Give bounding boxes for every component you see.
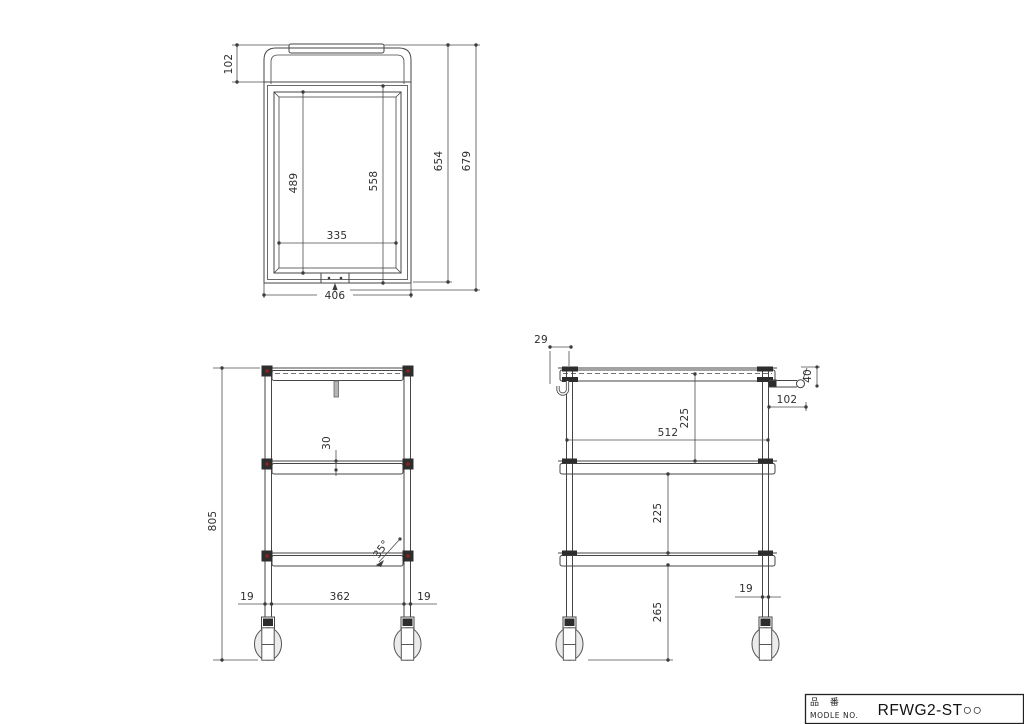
dim-handle-length: 102 bbox=[777, 394, 798, 406]
front-view: 805 30 35° 19 362 19 bbox=[207, 366, 437, 662]
dim-left-offset: 19 bbox=[240, 591, 254, 603]
dim-handle-depth: 102 bbox=[223, 54, 235, 75]
dim-outer-width: 406 bbox=[325, 290, 346, 302]
side-hook bbox=[558, 381, 568, 394]
front-casters bbox=[255, 617, 422, 660]
model-number: RFWG2-ST○○ bbox=[878, 702, 983, 719]
clamp-dot bbox=[406, 554, 410, 558]
dim-shelf-gap-top: 225 bbox=[679, 408, 691, 429]
side-posts bbox=[567, 368, 769, 617]
clamp-dot bbox=[265, 554, 269, 558]
dim-shelf-gap-bottom: 225 bbox=[652, 503, 664, 524]
dim-right-offset: 19 bbox=[417, 591, 431, 603]
side-view-dimensions: 29 40 102 225 512 225 265 19 bbox=[534, 334, 820, 662]
dim-total-length: 679 bbox=[461, 151, 473, 172]
handle bbox=[264, 44, 411, 84]
dim-total-height: 805 bbox=[207, 511, 219, 532]
name-plate bbox=[321, 273, 349, 283]
dim-hook-offset: 29 bbox=[534, 334, 548, 346]
hook-pin bbox=[334, 381, 339, 397]
dim-leg-span: 362 bbox=[330, 591, 351, 603]
front-shelf-bottom bbox=[262, 551, 414, 567]
dim-inner-width: 335 bbox=[327, 230, 348, 242]
clamp-dot bbox=[406, 369, 410, 373]
title-block: 品 番 MODLE NO. RFWG2-ST○○ bbox=[806, 695, 1024, 724]
clamp-dot bbox=[265, 462, 269, 466]
dim-post-dia: 19 bbox=[739, 583, 753, 595]
front-shelf-top bbox=[262, 366, 414, 398]
front-posts bbox=[265, 368, 411, 617]
caster-wheel bbox=[255, 628, 282, 660]
dim-bottom-clearance: 265 bbox=[652, 602, 664, 623]
side-shelf-top bbox=[558, 367, 777, 387]
dim-shelf-lip: 30 bbox=[321, 436, 333, 450]
clamp-dot bbox=[265, 369, 269, 373]
caster-wheel bbox=[556, 628, 583, 660]
part-number-label-en: MODLE NO. bbox=[810, 711, 858, 720]
dim-caster-angle: 35° bbox=[371, 538, 392, 561]
part-number-label-jp: 品 番 bbox=[810, 696, 843, 708]
dim-body-length: 654 bbox=[433, 151, 445, 172]
dim-frame-length: 558 bbox=[368, 171, 380, 192]
dim-handle-height: 40 bbox=[802, 369, 814, 383]
top-shelf-frame bbox=[264, 82, 411, 283]
dim-depth: 512 bbox=[658, 427, 679, 439]
caster-wheel bbox=[394, 628, 421, 660]
top-view: 102 489 558 654 679 335 406 bbox=[223, 43, 480, 302]
side-casters bbox=[556, 617, 779, 660]
side-shelf-middle bbox=[558, 459, 777, 475]
technical-drawing: 102 489 558 654 679 335 406 bbox=[0, 0, 1024, 724]
drawing-sheet: 102 489 558 654 679 335 406 bbox=[0, 0, 1024, 724]
caster-wheel bbox=[752, 628, 779, 660]
dim-inner-length: 489 bbox=[288, 173, 300, 194]
side-view: 29 40 102 225 512 225 265 19 bbox=[534, 334, 820, 662]
clamp-dot bbox=[406, 462, 410, 466]
